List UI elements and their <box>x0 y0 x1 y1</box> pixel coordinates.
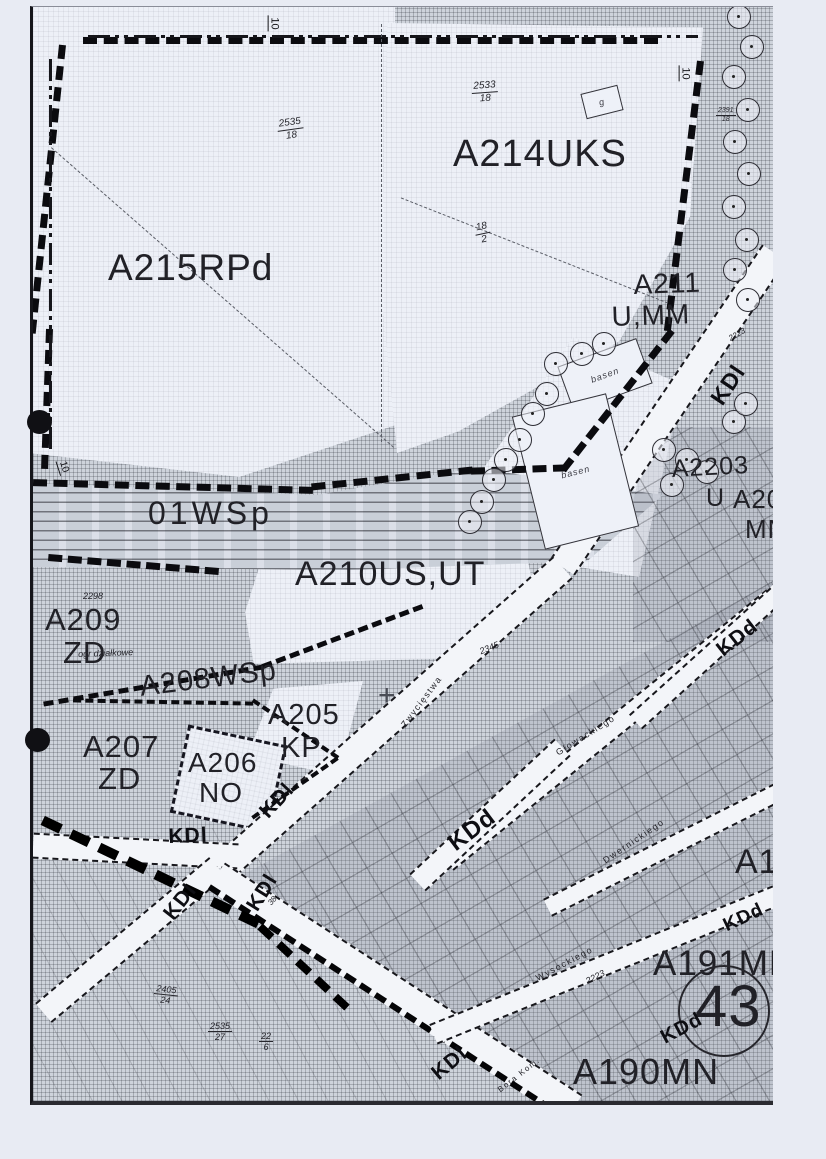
zone-note-dzialkowe: ogr działkowe <box>78 647 133 659</box>
limit-line-left <box>49 59 52 454</box>
tree-icon <box>544 352 568 376</box>
parcel-2405-24: 240524 <box>153 983 179 1007</box>
tree-icon <box>570 342 594 366</box>
zone-label-a204-mn: MN <box>745 514 773 545</box>
zone-a215rpd <box>33 7 395 477</box>
building-g-label: g <box>598 96 606 107</box>
zone-label-a190mn: A190MN <box>573 1051 719 1093</box>
limit-line-top <box>88 35 698 38</box>
zone-label-a207-zd: ZD <box>98 761 141 797</box>
zone-label-01wsp: 01WSp <box>148 495 273 532</box>
pool-upper-label: basen <box>589 365 620 384</box>
tree-icon <box>722 195 746 219</box>
zone-label-a209: A209 <box>45 602 121 638</box>
zone-label-a204: A204 <box>733 484 773 515</box>
tree-icon <box>736 288 760 312</box>
zone-label-a206-no: NO <box>199 777 243 809</box>
zone-label-a2203-u: U <box>706 484 725 513</box>
line-marker-10-top: 10 <box>268 15 281 31</box>
tree-icon <box>722 65 746 89</box>
survey-cross-icon: + <box>378 679 396 713</box>
tree-icon <box>521 402 545 426</box>
tree-icon <box>740 35 764 59</box>
tree-icon <box>735 228 759 252</box>
zoning-map-canvas: basen basen g <box>30 6 773 1105</box>
tree-icon <box>734 392 758 416</box>
zone-label-43: 43 <box>695 973 762 1040</box>
zone-label-a211-umm: U,MM <box>611 298 691 333</box>
tree-icon <box>723 130 747 154</box>
parcel-22-6: 226 <box>259 1031 273 1053</box>
zone-label-a208wsp: A208WSp <box>138 654 279 704</box>
parcel-line-a215-a214 <box>381 24 382 442</box>
scanned-page: basen basen g <box>0 0 826 1159</box>
tree-icon <box>592 332 616 356</box>
line-marker-10-a214: 10 <box>679 65 692 81</box>
parcel-2533-18: 253318 <box>471 79 499 105</box>
zone-label-a19-clipped: A19 <box>735 843 773 882</box>
parcel-2391-18: 239118 <box>716 107 736 124</box>
parcel-2535-27: 253527 <box>208 1021 232 1043</box>
tree-icon <box>723 258 747 282</box>
parcel-2535-18: 253518 <box>276 115 305 142</box>
hole-punch-icon <box>25 728 50 752</box>
tree-icon <box>458 510 482 534</box>
zone-label-a211: A211 <box>633 267 701 301</box>
tree-icon <box>727 6 751 29</box>
tree-icon <box>482 468 506 492</box>
zone-label-a210usut: A210US,UT <box>295 555 485 594</box>
zone-label-a2203: A2203 <box>671 451 750 484</box>
line-marker-10-left: 10 <box>56 458 72 476</box>
zone-label-a205-kp: KP <box>281 732 322 765</box>
zone-label-a207: A207 <box>83 729 159 765</box>
zone-label-a206: A206 <box>188 747 257 779</box>
zone-label-a205: A205 <box>268 699 340 732</box>
zone-label-a215rpd: A215RPd <box>108 247 273 289</box>
tree-icon <box>736 98 760 122</box>
plan-boundary-top <box>83 37 658 44</box>
parcel-2298: 2298 <box>83 591 103 601</box>
tree-icon <box>737 162 761 186</box>
hole-punch-icon <box>27 410 52 434</box>
zone-label-a214uks: A214UKS <box>453 133 627 176</box>
road-label-kdl-2: KDl <box>168 824 208 849</box>
